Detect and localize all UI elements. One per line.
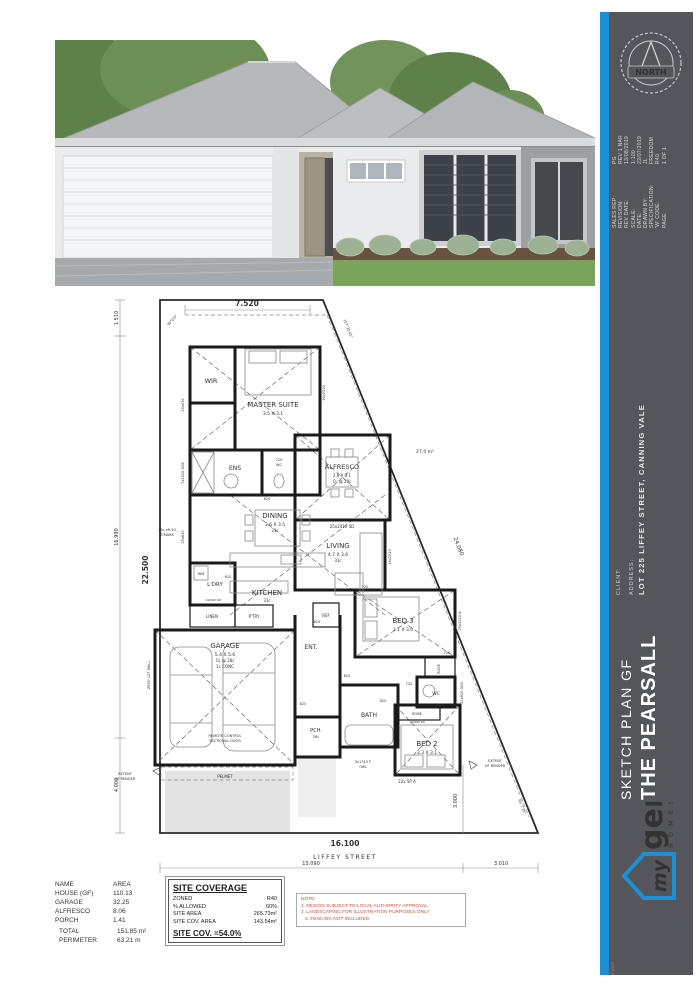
angle-tl: 90°0'0" [166, 314, 178, 327]
wc-label-a: WC [276, 463, 282, 467]
plan-type-title: SKETCH PLAN GF [618, 630, 634, 800]
dim-l1: 1.510 [114, 311, 120, 325]
room-ent: ENT. [304, 644, 317, 651]
total-row: TOTAL151.85 m² [55, 927, 167, 936]
svg-text:my: my [649, 858, 671, 892]
room-alfresco-cl: CL @ 28c [333, 479, 352, 484]
win-7x1010: 7x1010 OBS [181, 461, 185, 483]
room-kitchen: KITCHEN [252, 589, 282, 597]
wc-720a: 720 [276, 458, 283, 462]
mygen-logo: my gen H O M E S [614, 802, 686, 902]
garage-floor: 1c CONC [216, 664, 234, 669]
extent-arrow-right [469, 761, 477, 769]
dim-top: 7.520 [235, 299, 259, 308]
alfresco-sd: 25x2410 SD [330, 524, 355, 529]
wc2-720: 720 [406, 682, 413, 686]
bmark-1: 25c eff 40 [158, 528, 176, 532]
extent-left-1: EXTENT [118, 772, 133, 776]
client-address-block: CLIENT: ADDRESS: LOT 225 LIFFEY STREET, … [616, 265, 662, 595]
note-box: NOTE: 1. DESIGN SUBJECT TO LOCAL AUTHORI… [296, 893, 466, 927]
alfresco-area: 27.0 m² [416, 449, 434, 455]
table-row: SITE AREA265.73m² [173, 911, 277, 919]
living-cl: 31c [334, 558, 341, 563]
door-620-b: 620 [225, 575, 232, 579]
site-coverage-box: SITE COVERAGE ZONEDR40 % ALLOWED60% SITE… [168, 879, 282, 943]
table-row: GARAGE32.25 [55, 898, 167, 907]
robe2-label: ROBE [412, 712, 422, 716]
walls [155, 347, 460, 775]
room-bed3-size: 3.1 X 3.0 [393, 627, 413, 633]
extent-right-2: OF RENDER [485, 764, 506, 768]
entry-door [299, 152, 333, 258]
dim-l2: 16.990 [114, 528, 120, 546]
meta-row: PAGE:1 OF 1 [662, 96, 668, 228]
accent-window [531, 158, 587, 244]
svg-text:H O M E S: H O M E S [667, 802, 675, 848]
room-ens: ENS [229, 465, 241, 472]
room-linen: LINEN [206, 614, 218, 619]
dim-left-total: 22.500 [141, 556, 150, 585]
sketch-plan-page: 7.520 22.500 1.510 16.990 4.000 16.100 L… [0, 0, 700, 990]
porch-path [298, 757, 336, 817]
main-window [419, 150, 521, 246]
room-alfresco-size: 2.6 X 3.1 [333, 473, 351, 478]
table-row: PORCH1.41 [55, 916, 167, 925]
svg-text:NORTH: NORTH [635, 68, 666, 77]
area-table-header: NAMEAREA [55, 880, 167, 889]
room-ldry: L'DRY [207, 582, 223, 588]
garage-sectional: SECTIONAL DOOR [209, 739, 241, 743]
room-bath: BATH [361, 712, 377, 719]
door-820-b: 820 [344, 674, 351, 678]
dim-r1: 3.000 [453, 794, 459, 808]
table-row: SITE COV. AREA143.54m² [173, 919, 277, 927]
dim-b1: 13.090 [302, 861, 320, 867]
win-12x610: 12x610 OBS [460, 681, 464, 703]
room-master: MASTER SUITE [247, 401, 298, 409]
garage-cl: CL @ 28c [216, 658, 235, 663]
wc2-label: WC [432, 691, 440, 697]
roof-dash-lines [155, 347, 460, 775]
floor-plan: 7.520 22.500 1.510 16.990 4.000 16.100 L… [95, 285, 565, 885]
table-row: % ALLOWED60% [173, 904, 277, 912]
win-16x2510-b: 16x2510 [388, 549, 392, 564]
address-label: ADDRESS: [629, 265, 635, 595]
room-bed3: BED 3 [392, 617, 413, 625]
kitchen-cl: 31c [263, 598, 270, 603]
copyright-text: © 2015 [611, 825, 617, 975]
win-5x1310-obs: OBS [359, 765, 367, 769]
ldry-sd: 1400W SD [205, 598, 221, 602]
extent-right-1: EXTENT [488, 759, 503, 763]
door-820-a: 820 [314, 620, 321, 624]
drawing-title-block: SKETCH PLAN GF THE PEARSALL [618, 630, 674, 800]
pelmet-label: PELMET [217, 774, 233, 779]
room-alfresco: ALFRESCO [325, 463, 359, 471]
bmark-2: B'MARK [160, 533, 174, 537]
win-25x610: 25x610 [181, 398, 185, 411]
win-22xsp: 22x SP A [398, 779, 416, 784]
title-block-meta: SALES REP:PG REVISION:REV 1 NAR REV DATE… [612, 96, 668, 228]
door-620-a: 620 [264, 497, 271, 501]
site-coverage-title: SITE COVERAGE [173, 883, 277, 893]
room-living: LIVING [326, 542, 349, 550]
door-720-b: 720 [444, 651, 451, 655]
table-row: ALFRESCO8.06 [55, 907, 167, 916]
room-ref: REF [322, 613, 330, 618]
room-wir: WIR [205, 377, 218, 385]
room-master-size: 3.5 X 3.1 [263, 411, 283, 417]
pch-cl: 28c [313, 735, 319, 739]
win-16x2510-a: 16x2510 [322, 385, 326, 400]
perimeter-row: PERIMETER63.21 m [55, 936, 167, 945]
room-bed2: BED 2 [416, 740, 437, 748]
door-820-d: 820 [300, 702, 307, 706]
area-table: NAMEAREA HOUSE (GF)110.13 GARAGE32.25 AL… [55, 880, 167, 945]
win-5x1310: 5x1310 F [355, 760, 371, 764]
win-25x810: 25x810 [181, 530, 185, 543]
house-render-image [55, 40, 595, 286]
room-dining: DINING [262, 512, 287, 520]
robe3-label: ROBE [437, 664, 441, 674]
win-25x1210: 25x1210 A [458, 611, 462, 631]
garage-remote: REMOTE CONTROL [209, 734, 242, 738]
client-label: CLIENT: [616, 265, 622, 595]
north-compass-icon: NORTH [616, 22, 686, 104]
svg-text:gen: gen [635, 802, 670, 850]
door-720-a: 720 [362, 585, 369, 589]
robe2-sd: 1200W SD [409, 720, 425, 724]
sidebar-accent-stripe [600, 12, 609, 975]
dining-cl: 31c [271, 528, 278, 533]
note-line: 3. FENCING NOT INCLUDED [301, 917, 461, 924]
table-row: HOUSE (GF)110.13 [55, 889, 167, 898]
dim-diag: 24.080 [452, 537, 465, 558]
zero-lot-wall: ZERO LOT WALL [147, 661, 151, 689]
room-bed2-size: 3.3 X 3.1 [417, 750, 437, 756]
table-row: ZONEDR40 [173, 896, 277, 904]
wm-label: WM [198, 572, 204, 576]
highlight-window [347, 160, 405, 182]
room-pch: PCH. [310, 728, 322, 734]
room-ptry: P'TRY [249, 614, 260, 619]
extent-left-2: OF RENDER [115, 777, 136, 781]
dim-bottom: 16.100 [331, 839, 360, 848]
angle-tr: 157°25'45" [342, 319, 353, 339]
dim-b2: 3.010 [494, 861, 508, 867]
site-coverage-result: SITE COV. =54.0% [173, 929, 277, 938]
street-name: LIFFEY STREET [313, 854, 377, 861]
address-value: LOT 225 LIFFEY STREET, CANNING VALE [637, 265, 646, 595]
door-820-c: 820 [380, 699, 387, 703]
plan-name-title: THE PEARSALL [638, 630, 661, 800]
room-garage: GARAGE [210, 642, 239, 650]
